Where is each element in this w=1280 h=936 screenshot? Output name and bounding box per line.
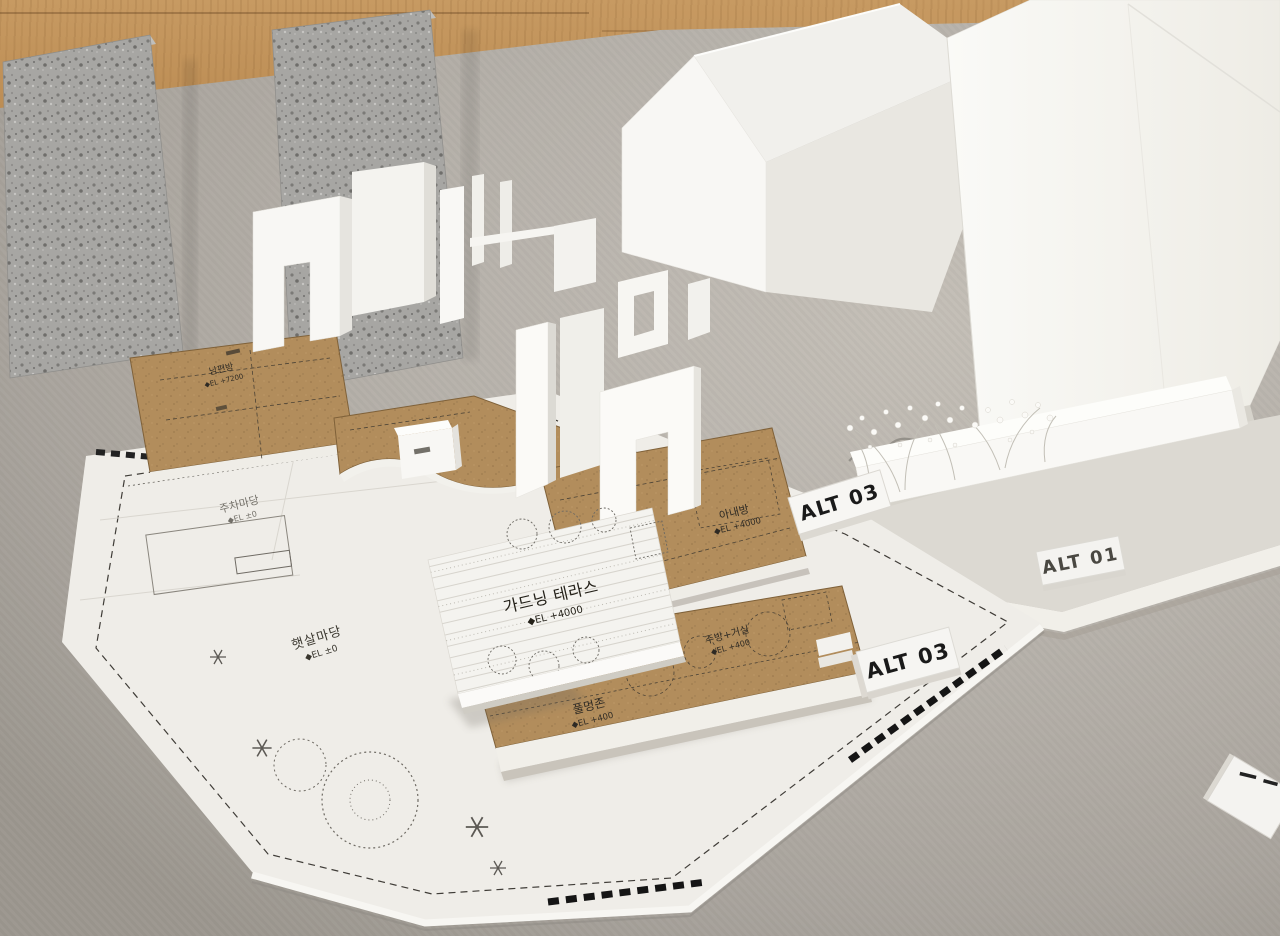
stair-box-front bbox=[398, 428, 456, 479]
wall-panel bbox=[352, 162, 424, 316]
tag-face bbox=[1207, 756, 1280, 839]
wall-side bbox=[548, 322, 556, 484]
wall-panel-tall bbox=[516, 322, 548, 498]
wall-panel bbox=[560, 308, 604, 478]
wall-strip bbox=[688, 278, 710, 340]
wall-strip bbox=[472, 174, 484, 266]
partial-label-tag bbox=[1203, 753, 1280, 838]
wall-side bbox=[340, 196, 352, 336]
white-foam-house-gabled bbox=[622, 4, 1002, 312]
tower-left bbox=[3, 35, 183, 378]
wall-side bbox=[694, 366, 701, 508]
wall-strip bbox=[500, 180, 512, 268]
tower-shadow bbox=[183, 60, 197, 360]
architectural-model: ALT 01 bbox=[0, 0, 1280, 936]
wall-panel bbox=[440, 186, 464, 324]
wall-panel bbox=[554, 218, 596, 292]
model-photo-scene: ALT 01 bbox=[0, 0, 1280, 936]
wall-side bbox=[424, 162, 436, 302]
wall-with-window bbox=[618, 270, 668, 358]
